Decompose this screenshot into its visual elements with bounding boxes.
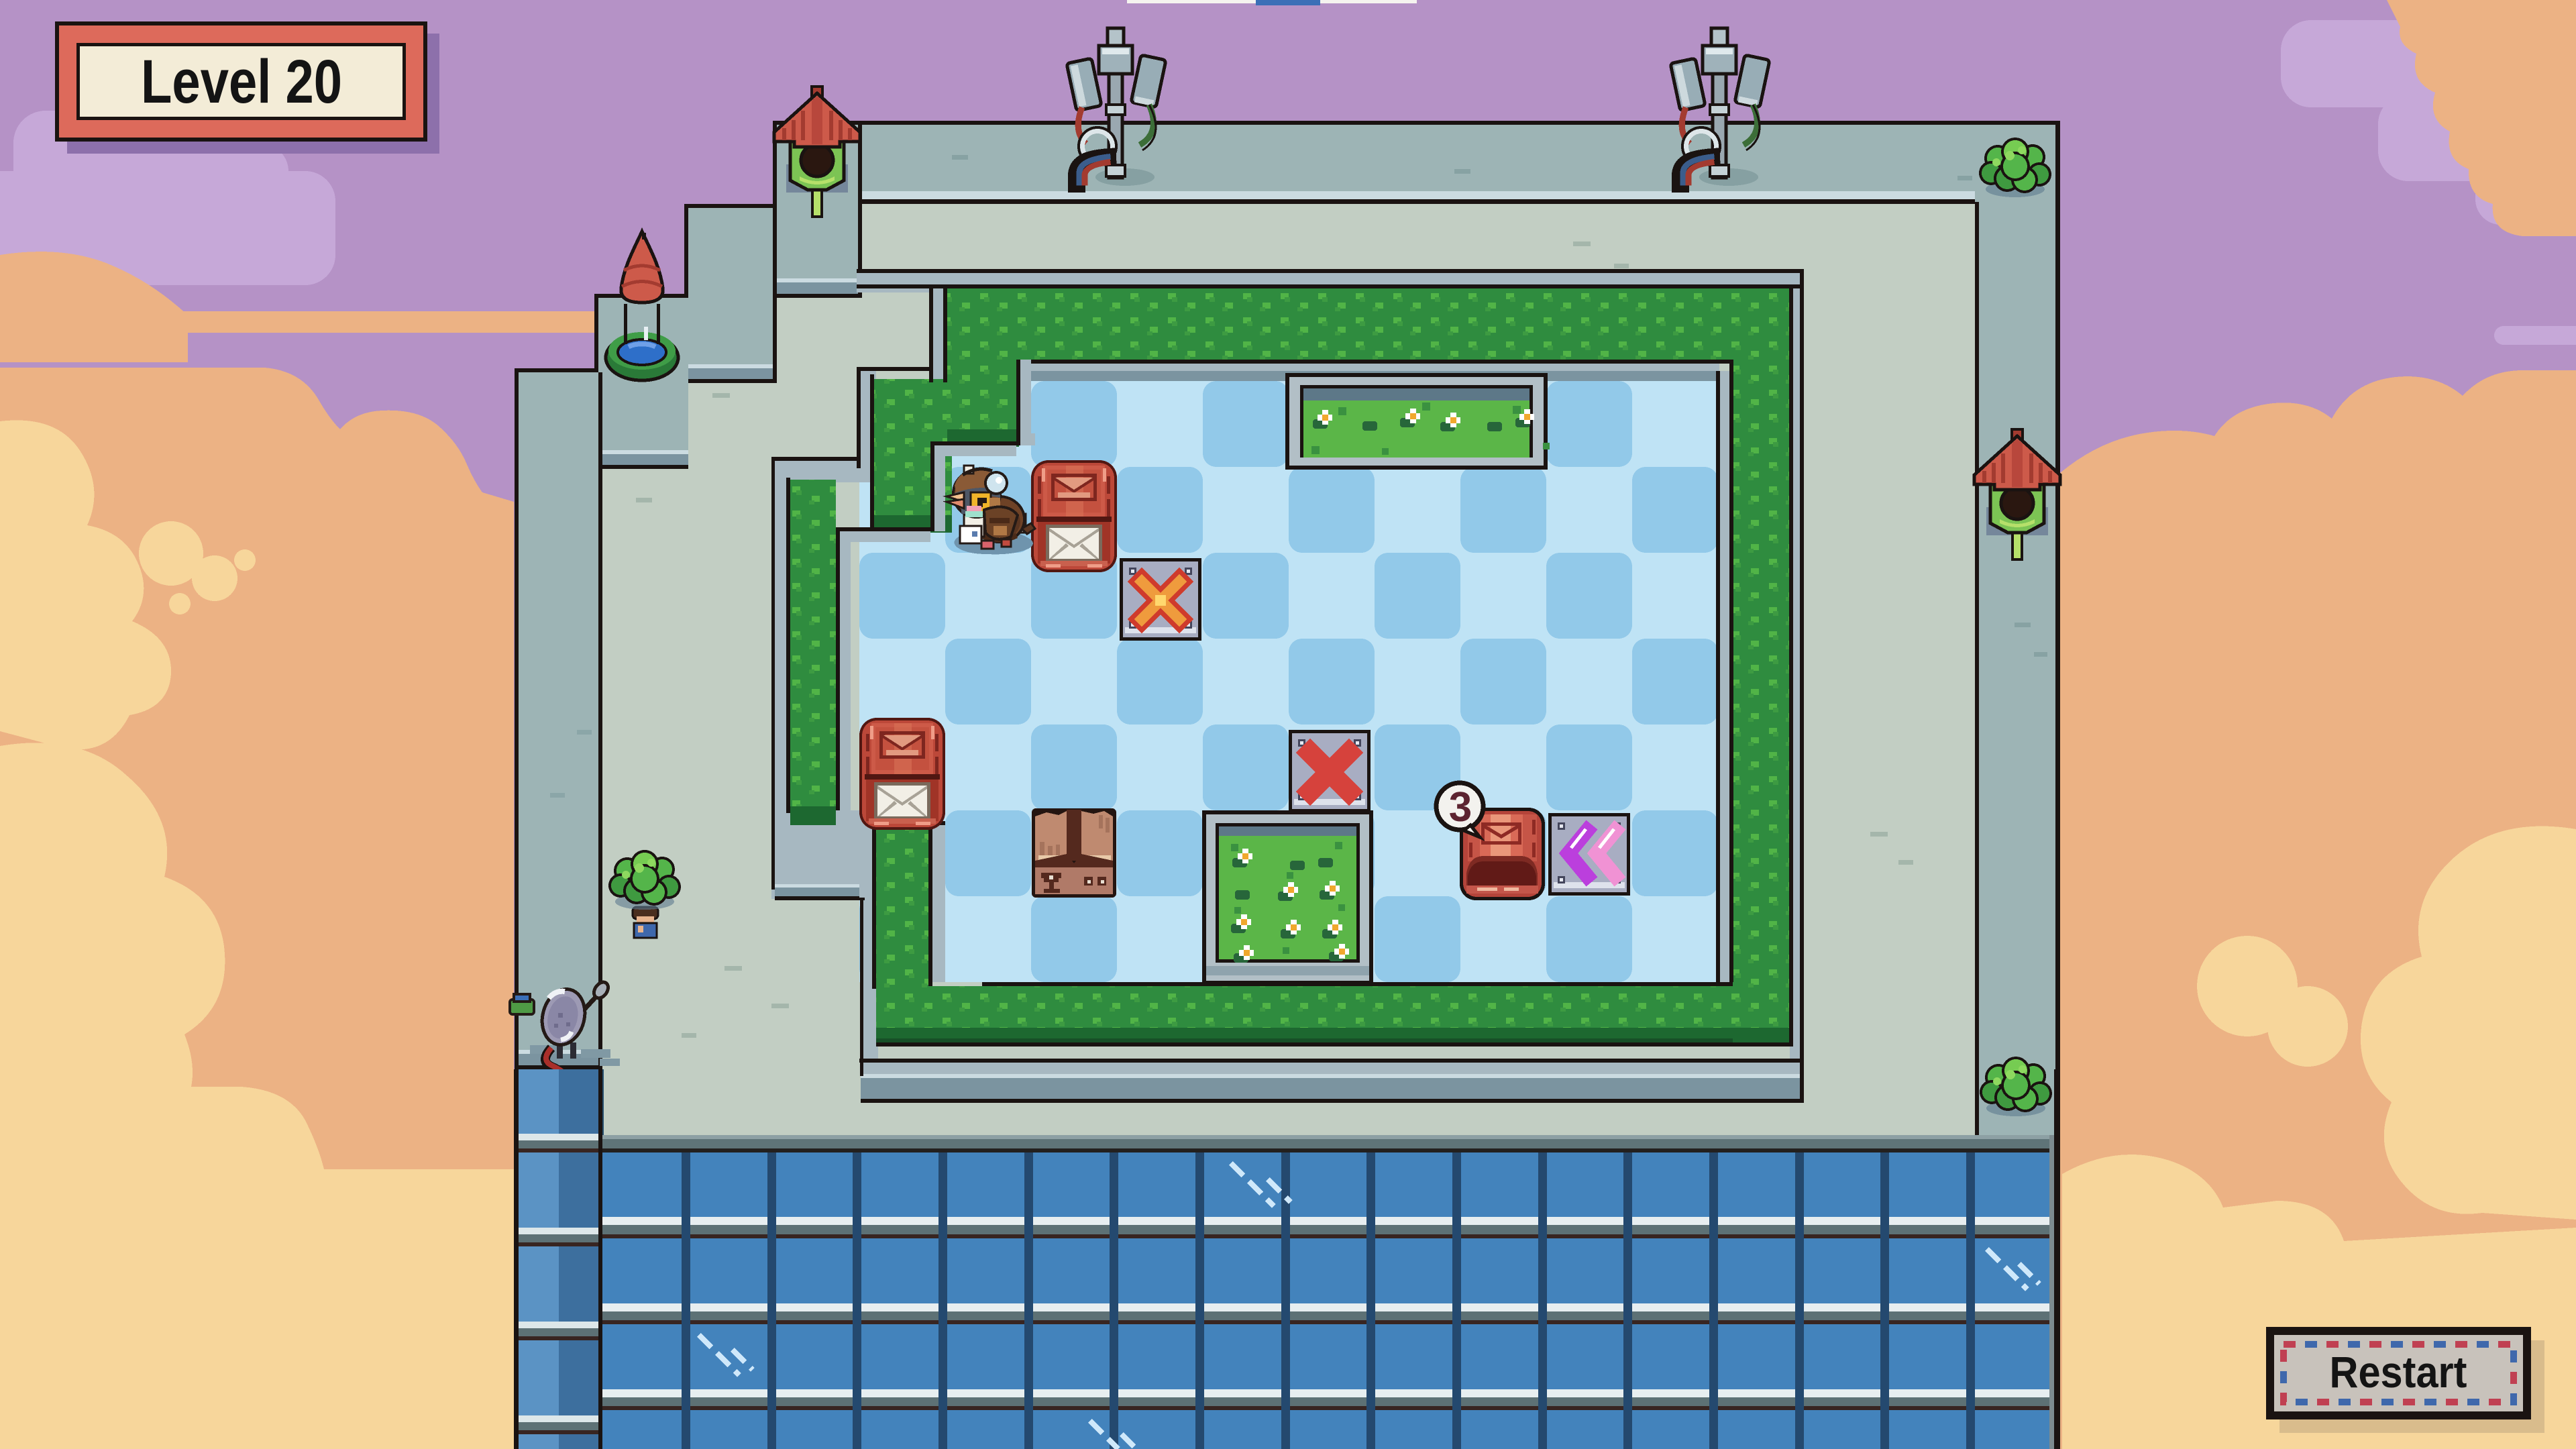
svg-text:Restart: Restart [2330, 1347, 2467, 1397]
svg-text:3: 3 [1449, 784, 1472, 830]
svg-text:Level 20: Level 20 [141, 48, 342, 116]
